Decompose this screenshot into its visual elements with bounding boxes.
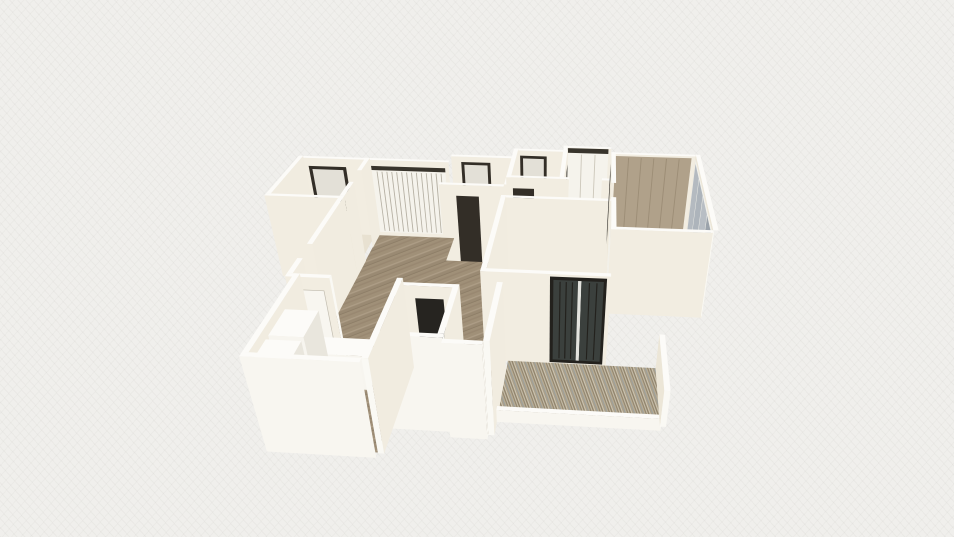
- bedroom-right-south-wall[interactable]: [606, 229, 714, 318]
- bedroom-divider-wall-north-top: [611, 152, 616, 183]
- floorplan-app-viewport: [0, 0, 954, 537]
- bedroom-right-closet[interactable]: [612, 156, 692, 230]
- floorplan-geometry: [239, 146, 719, 458]
- balcony-slider-glass[interactable]: [579, 281, 604, 362]
- kitchen-south-wall[interactable]: [239, 356, 376, 458]
- room-e-south-wall-west-top: [559, 177, 569, 179]
- floorplan-3d-view[interactable]: [0, 0, 954, 537]
